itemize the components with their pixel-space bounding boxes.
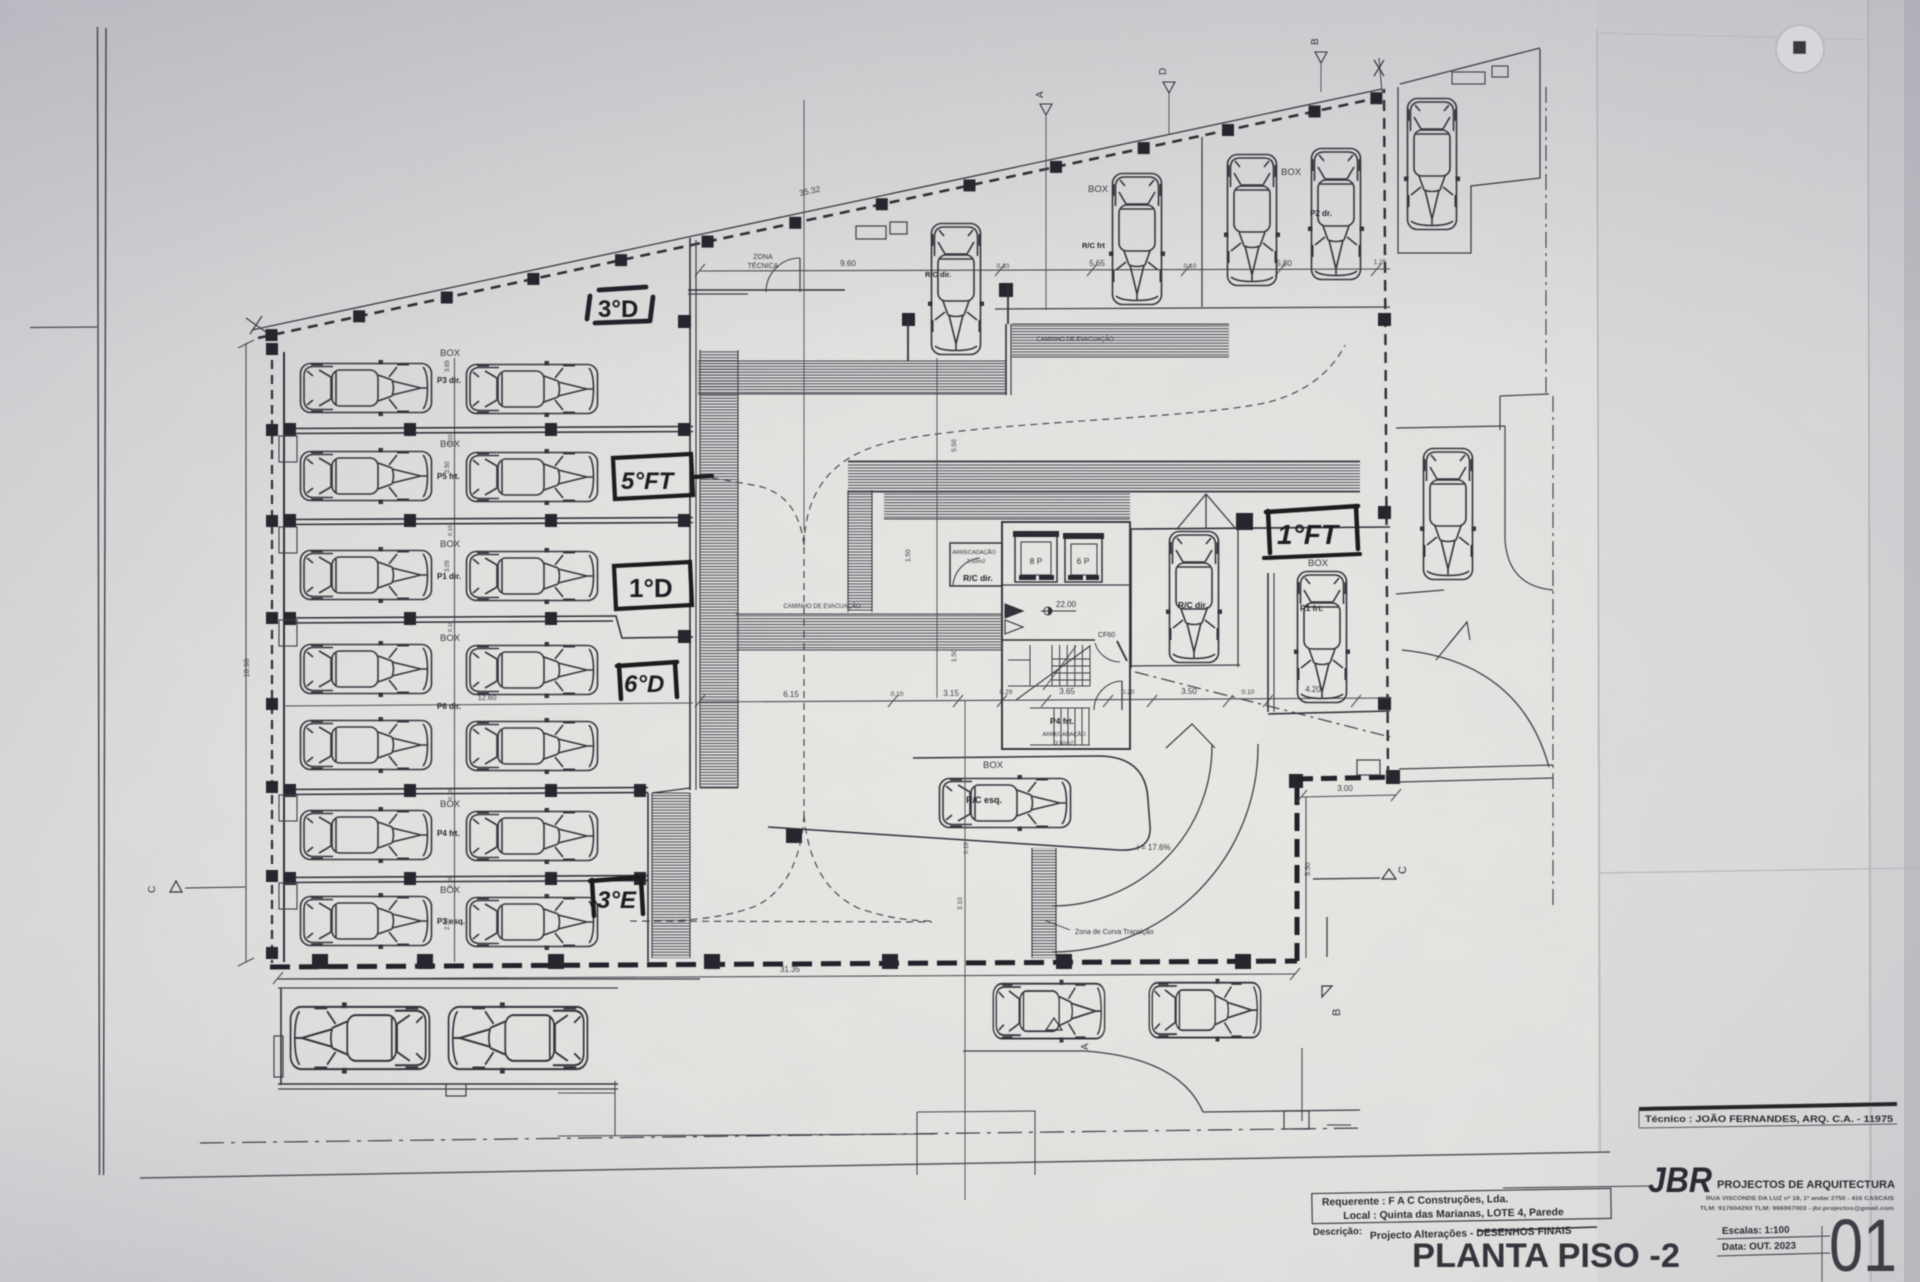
svg-text:6 P: 6 P (1077, 556, 1090, 566)
svg-text:5°FT: 5°FT (621, 468, 676, 495)
svg-text:0.20: 0.20 (1122, 689, 1135, 696)
svg-text:R/C frt: R/C frt (1082, 241, 1105, 250)
svg-text:B: B (1331, 1009, 1343, 1016)
svg-text:C: C (147, 886, 158, 893)
svg-text:1°D: 1°D (629, 573, 673, 603)
svg-text:0.10: 0.10 (1184, 263, 1197, 270)
svg-text:0.10: 0.10 (997, 263, 1010, 270)
svg-text:BOX: BOX (1281, 167, 1302, 178)
svg-text:9.60: 9.60 (840, 259, 856, 268)
svg-text:2.50: 2.50 (445, 918, 451, 930)
svg-text:0.10: 0.10 (448, 434, 454, 445)
svg-text:0.10: 0.10 (891, 691, 904, 698)
svg-text:ARRECADAÇÃO: ARRECADAÇÃO (1042, 731, 1086, 738)
svg-text:ZONA: ZONA (753, 254, 773, 261)
svg-text:CAMINHO DE EVACUAÇÃO: CAMINHO DE EVACUAÇÃO (1036, 336, 1114, 343)
svg-text:i = 17.6%: i = 17.6% (1137, 843, 1171, 852)
svg-text:PLANTA PISO -2: PLANTA PISO -2 (1412, 1237, 1680, 1275)
svg-text:2.50: 2.50 (445, 461, 451, 473)
svg-text:Descrição:: Descrição: (1313, 1226, 1362, 1238)
svg-text:3°D: 3°D (598, 296, 638, 323)
svg-text:3°E: 3°E (597, 887, 637, 914)
svg-text:3.65: 3.65 (1059, 687, 1075, 696)
svg-text:6.15: 6.15 (783, 690, 799, 699)
svg-text:CF60: CF60 (1098, 632, 1115, 639)
svg-text:CAMINHO DE EVACUAÇÃO: CAMINHO DE EVACUAÇÃO (783, 603, 861, 610)
svg-text:1.50: 1.50 (951, 649, 958, 662)
svg-text:JBR: JBR (1648, 1161, 1713, 1200)
svg-text:1°FT: 1°FT (1277, 519, 1341, 550)
svg-text:1.25: 1.25 (1374, 259, 1387, 266)
svg-text:3.50m2: 3.50m2 (1055, 741, 1074, 747)
svg-text:Técnico : JOÃO FERNANDES, ARQ.: Técnico : JOÃO FERNANDES, ARQ. C.A. - 11… (1645, 1114, 1894, 1125)
svg-text:P3 esq.: P3 esq. (437, 917, 465, 926)
svg-text:Data: OUT. 2023: Data: OUT. 2023 (1722, 1241, 1797, 1253)
svg-text:R/C dir.: R/C dir. (963, 573, 993, 583)
svg-text:3.15: 3.15 (943, 689, 959, 698)
svg-text:A: A (1080, 1043, 1091, 1050)
svg-text:3.05: 3.05 (445, 560, 451, 572)
svg-text:P4 frt.: P4 frt. (437, 829, 460, 838)
svg-text:3.50: 3.50 (1181, 687, 1197, 696)
svg-text:3.65: 3.65 (445, 360, 451, 372)
svg-text:BOX: BOX (1308, 558, 1329, 569)
svg-text:2.50m2: 2.50m2 (967, 559, 986, 565)
svg-text:P2 dr.: P2 dr. (1310, 209, 1332, 218)
svg-text:BOX: BOX (983, 760, 1004, 771)
svg-text:6°D: 6°D (624, 671, 664, 698)
svg-text:B: B (1310, 38, 1321, 45)
svg-text:22.00: 22.00 (1056, 600, 1077, 609)
svg-text:A: A (1035, 91, 1046, 98)
svg-text:BOX: BOX (440, 633, 461, 644)
svg-text:P3 dir.: P3 dir. (437, 376, 461, 385)
svg-text:BOX: BOX (440, 348, 461, 359)
svg-text:5.80: 5.80 (1276, 259, 1292, 268)
svg-text:3.10: 3.10 (957, 897, 964, 910)
svg-text:RUA VISCONDE DA LUZ nº 18, 1º: RUA VISCONDE DA LUZ nº 18, 1º andar 2750… (1706, 1196, 1894, 1202)
svg-text:Escalas: 1:100: Escalas: 1:100 (1722, 1225, 1790, 1237)
svg-text:PROJECTOS DE ARQUITECTURA: PROJECTOS DE ARQUITECTURA (1717, 1179, 1895, 1191)
svg-text:Zona de Curva Transição: Zona de Curva Transição (1075, 929, 1154, 936)
svg-text:8 P: 8 P (1030, 556, 1043, 566)
svg-text:0.10: 0.10 (448, 621, 454, 632)
svg-text:18.98: 18.98 (242, 659, 251, 678)
svg-text:TÉCNICA: TÉCNICA (748, 261, 779, 270)
svg-text:4.20: 4.20 (1305, 685, 1321, 694)
svg-text:BOX: BOX (1088, 184, 1109, 195)
svg-text:R1 frt.: R1 frt. (1300, 604, 1323, 613)
svg-text:1.50: 1.50 (905, 549, 912, 562)
svg-text:5.50: 5.50 (951, 439, 958, 452)
svg-text:D: D (1158, 68, 1169, 75)
svg-text:R/C dir.: R/C dir. (925, 270, 951, 279)
svg-text:31.35: 31.35 (780, 965, 801, 974)
svg-text:5.50: 5.50 (1305, 862, 1312, 876)
svg-text:0.10: 0.10 (964, 842, 970, 854)
svg-text:BOX: BOX (440, 539, 461, 550)
svg-text:5.65: 5.65 (1089, 259, 1105, 268)
svg-text:3.00: 3.00 (1337, 784, 1353, 793)
svg-text:0.10: 0.10 (448, 525, 454, 536)
svg-text:R/C esq.: R/C esq. (966, 795, 1002, 805)
svg-text:P1 dir.: P1 dir. (437, 572, 461, 581)
svg-text:R/C dir.: R/C dir. (1178, 600, 1208, 610)
svg-text:0.10: 0.10 (448, 789, 454, 800)
svg-text:P6 dir.: P6 dir. (437, 702, 461, 711)
svg-text:0.10: 0.10 (1242, 689, 1255, 696)
svg-text:ARRECADAÇÃO: ARRECADAÇÃO (952, 549, 996, 556)
svg-text:P4 frt.: P4 frt. (1050, 716, 1074, 726)
svg-text:0.10: 0.10 (448, 877, 454, 888)
svg-text:C: C (1397, 866, 1409, 874)
svg-text:01: 01 (1829, 1204, 1897, 1282)
